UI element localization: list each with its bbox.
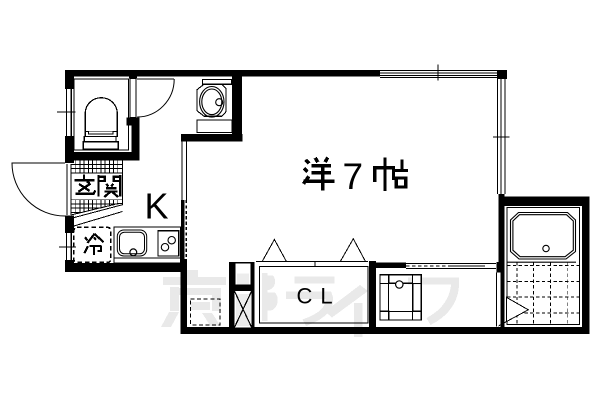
svg-text:7: 7 bbox=[343, 156, 364, 197]
svg-text:CL: CL bbox=[297, 284, 341, 309]
svg-text:K: K bbox=[145, 185, 169, 226]
